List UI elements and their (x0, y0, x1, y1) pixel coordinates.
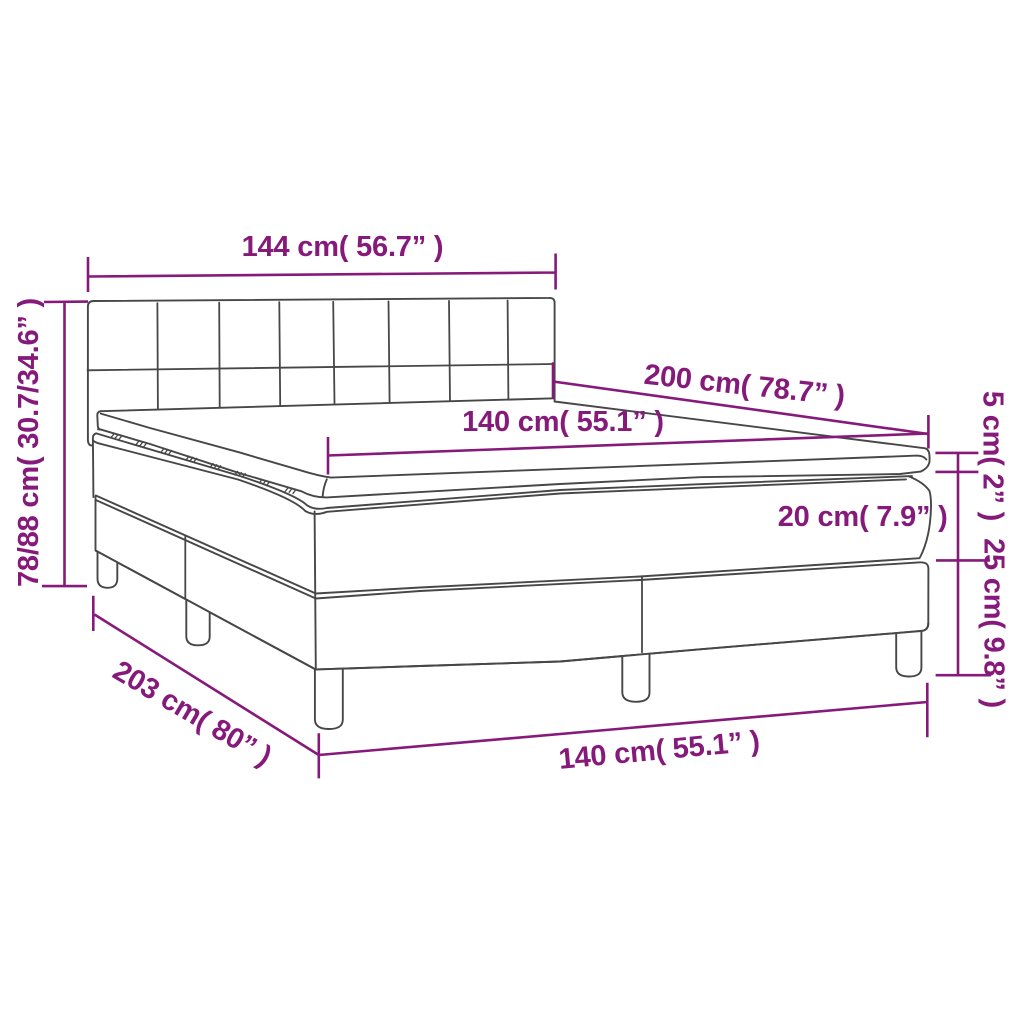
svg-text:200 cm( 78.7” ): 200 cm( 78.7” ) (642, 359, 846, 413)
svg-text:25 cm( 9.8” ): 25 cm( 9.8” ) (978, 538, 1010, 708)
svg-text:78/88 cm( 30.7/34.6” ): 78/88 cm( 30.7/34.6” ) (13, 298, 45, 587)
svg-text:5 cm( 2” ): 5 cm( 2” ) (977, 391, 1009, 521)
svg-text:20 cm( 7.9” ): 20 cm( 7.9” ) (778, 501, 948, 533)
svg-text:140 cm( 55.1” ): 140 cm( 55.1” ) (462, 406, 664, 438)
svg-text:144 cm( 56.7” ): 144 cm( 56.7” ) (242, 231, 444, 263)
